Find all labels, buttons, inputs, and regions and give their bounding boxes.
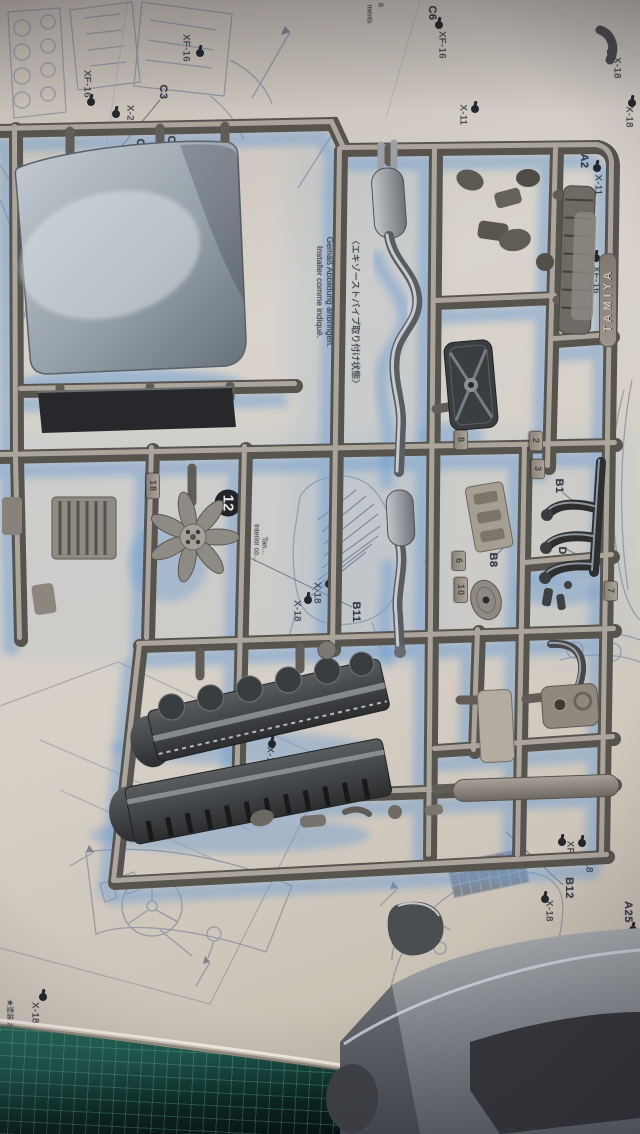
paint-callout: XF-1 xyxy=(565,841,576,863)
part-label-c6: C6 xyxy=(426,5,438,20)
part-label-b12: B12 xyxy=(563,877,575,899)
paint-callout: XF-16 xyxy=(437,31,448,59)
paint-callout: X-18 xyxy=(612,57,623,79)
part-label-a25: A25 xyxy=(622,901,634,923)
paint-dot-icon xyxy=(304,596,312,604)
part-label-b1: B1 xyxy=(553,478,565,493)
paint-callout: X-18 xyxy=(30,1002,41,1024)
sprue-tag: 3 xyxy=(531,459,545,479)
paint-dot-icon xyxy=(268,740,276,748)
instruction-sheet-artwork xyxy=(0,0,640,1134)
paint-dot-icon xyxy=(196,49,204,57)
sprue-tag: 7 xyxy=(604,581,618,601)
paint-callout: X-18 xyxy=(624,106,635,128)
paint-dot-icon xyxy=(593,164,601,172)
paint-callout: X-11 xyxy=(265,747,276,768)
paint-callout: X-18 xyxy=(584,851,595,873)
paint-dot-icon xyxy=(628,99,636,107)
paint-dot-icon xyxy=(578,839,586,847)
paint-dot-icon xyxy=(607,48,615,56)
step-number-badge: 12 xyxy=(215,490,242,517)
paint-callout: XF-16 xyxy=(181,34,192,62)
sprue-tag: 18 xyxy=(146,473,160,499)
step-note-line: メーカー… xyxy=(242,523,252,558)
part-label-a2: A2 xyxy=(578,153,590,168)
paint-callout: X-18 xyxy=(632,941,640,963)
model-kit-photo: XF-16 XF-16 X-2 XF-16 X-18 X-18 X-11 X-1… xyxy=(0,0,640,1134)
exhaust-note-en: Attach as shown. xyxy=(335,240,345,305)
part-label-c2: C2 xyxy=(165,135,177,150)
paint-dot-icon xyxy=(471,105,479,113)
paint-dot-icon xyxy=(629,926,637,934)
exhaust-note-jp: 〈エキゾーストパイプ取り付け状態〉 xyxy=(350,236,363,389)
paint-dot-icon xyxy=(39,993,47,1001)
paint-callout: X-18 xyxy=(292,600,303,622)
part-label-d2: D2 xyxy=(556,546,568,561)
step-note-line: Interior co… xyxy=(253,524,260,562)
paint-dot-icon xyxy=(558,838,566,846)
part-label-c3: C3 xyxy=(157,84,169,99)
sprue-tag: 2 xyxy=(529,431,543,451)
exhaust-note-fr: Installer comme indiqué. xyxy=(315,246,325,338)
paint-dot-icon xyxy=(435,21,443,29)
paint-dot-icon xyxy=(87,98,95,106)
paint-callout: X-2 xyxy=(125,105,136,121)
sprue-tag: 8 xyxy=(454,430,468,450)
paint-callout: X-18 xyxy=(312,582,323,604)
step-note-line: Tan… xyxy=(261,537,268,555)
exhaust-note-de: Gemäß Abbildung anbringen. xyxy=(325,237,335,348)
paint-callout: X-11 xyxy=(593,175,604,196)
paint-dot-icon xyxy=(112,110,120,118)
part-label-c1: C1 xyxy=(134,138,146,153)
paint-dot-icon xyxy=(541,895,549,903)
brand-plate: TAMIYA xyxy=(599,253,617,347)
paint-callout: X-18 xyxy=(544,900,555,922)
part-label-b8: B8 xyxy=(487,552,499,567)
paint-dot-icon xyxy=(325,580,333,588)
paint-callout: X-11 xyxy=(458,105,469,126)
part-label-b11: B11 xyxy=(350,601,362,622)
page-fragment: 8 xyxy=(377,3,384,7)
sprue-tag: 6 xyxy=(452,551,466,571)
sprue-tag: 10 xyxy=(454,577,468,603)
page-fragment: ments xyxy=(366,4,373,23)
